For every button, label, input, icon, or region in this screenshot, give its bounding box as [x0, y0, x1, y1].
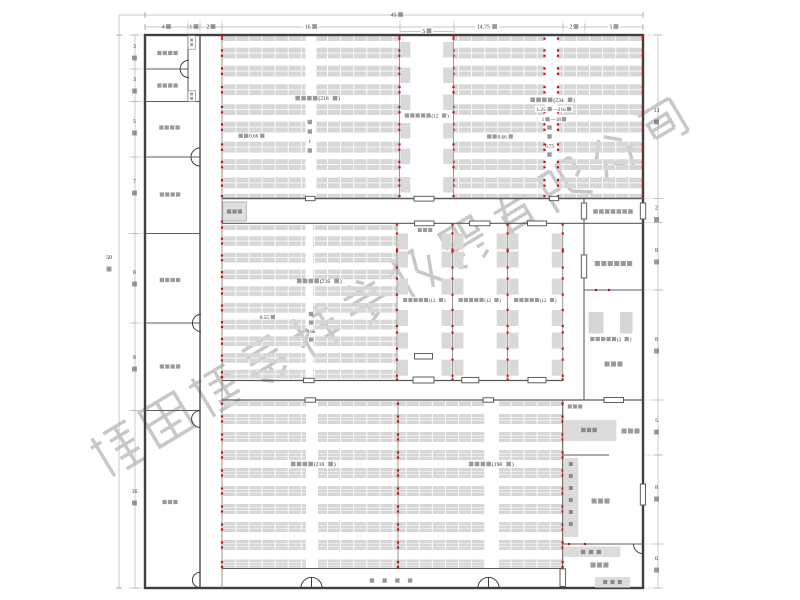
- svg-text:(234: (234: [553, 98, 563, 104]
- svg-text:): ): [512, 462, 514, 468]
- svg-text:(12: (12: [432, 113, 439, 119]
- svg-text:): ): [630, 337, 632, 343]
- svg-text:14.75: 14.75: [477, 25, 490, 31]
- svg-text:8: 8: [655, 248, 658, 254]
- svg-text:13: 13: [654, 108, 660, 114]
- svg-text:0.75: 0.75: [545, 143, 554, 149]
- svg-text:8: 8: [655, 337, 658, 343]
- svg-text:2: 2: [206, 25, 209, 31]
- svg-text:16: 16: [305, 25, 311, 31]
- svg-text:—18: —18: [550, 117, 562, 123]
- svg-text:1: 1: [309, 139, 312, 145]
- svg-text:7: 7: [133, 179, 136, 185]
- svg-text:2: 2: [655, 206, 658, 212]
- svg-text:1: 1: [189, 25, 192, 31]
- svg-text:): ): [573, 98, 575, 104]
- svg-text:0.55: 0.55: [260, 315, 269, 321]
- svg-text:(216: (216: [320, 279, 330, 285]
- svg-text:0.66: 0.66: [498, 134, 507, 140]
- svg-text:(2: (2: [617, 337, 622, 343]
- svg-text:8: 8: [133, 270, 136, 276]
- svg-text:(12: (12: [484, 298, 491, 304]
- svg-text:4: 4: [162, 25, 165, 31]
- svg-text:): ): [447, 113, 449, 119]
- svg-text:5: 5: [655, 418, 658, 424]
- svg-text:0.66: 0.66: [249, 134, 258, 140]
- svg-text:45: 45: [391, 13, 397, 19]
- svg-text:): ): [340, 279, 342, 285]
- svg-text:(218: (218: [314, 462, 324, 468]
- svg-text:6: 6: [655, 556, 658, 562]
- svg-text:0.66: 0.66: [307, 329, 316, 335]
- svg-text:(216: (216: [318, 96, 328, 102]
- svg-text:8: 8: [655, 485, 658, 491]
- svg-text:8: 8: [133, 355, 136, 361]
- svg-text:5: 5: [133, 119, 136, 125]
- svg-text:5: 5: [609, 25, 612, 31]
- svg-text:(12: (12: [540, 298, 547, 304]
- svg-text:16: 16: [132, 489, 138, 495]
- svg-text:): ): [338, 96, 340, 102]
- svg-text:(12: (12: [429, 298, 436, 304]
- svg-text:50: 50: [106, 255, 112, 261]
- svg-text:(198: (198: [492, 462, 502, 468]
- svg-text:2: 2: [569, 25, 572, 31]
- svg-text:—216: —216: [552, 107, 566, 113]
- svg-text:): ): [334, 462, 336, 468]
- svg-text:1.25: 1.25: [537, 107, 546, 113]
- svg-text:1: 1: [542, 117, 545, 123]
- svg-text:3: 3: [133, 44, 136, 50]
- svg-text:3: 3: [133, 77, 136, 83]
